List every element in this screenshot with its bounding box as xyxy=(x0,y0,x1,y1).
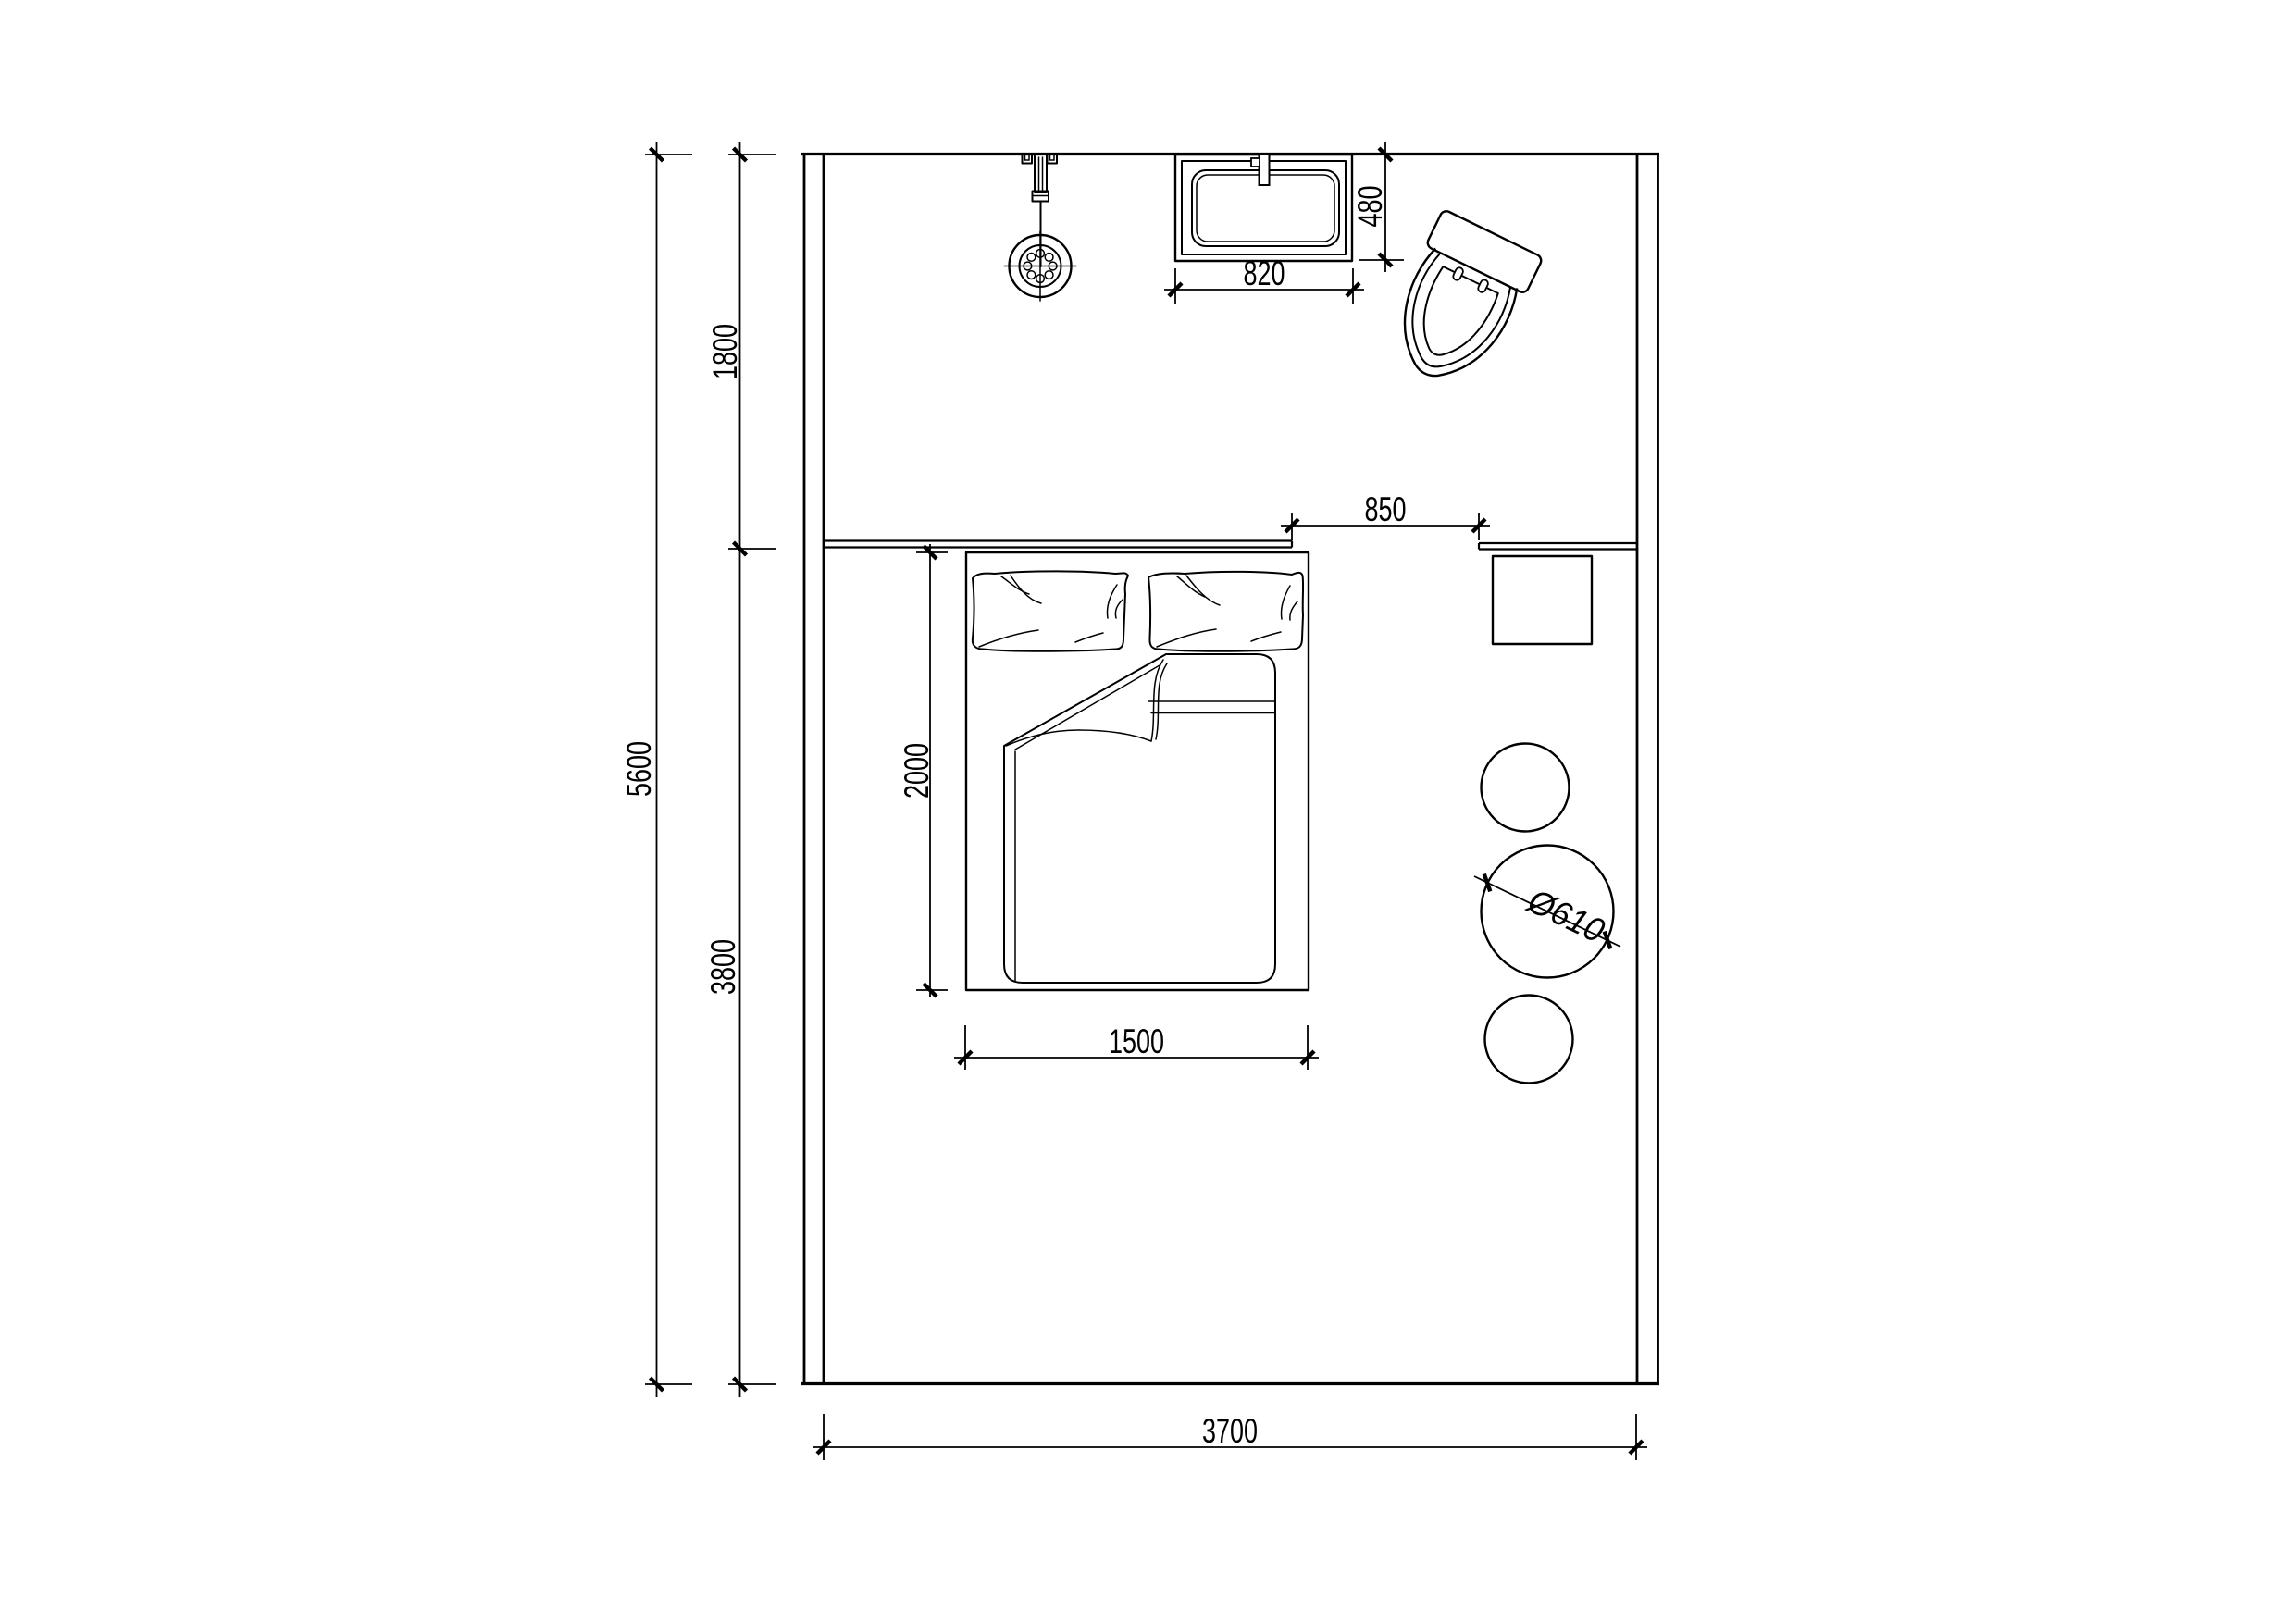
bed-frame xyxy=(966,552,1309,990)
basin-faucet-spout xyxy=(1260,155,1270,185)
dim-basin-depth: 480 xyxy=(1351,142,1404,272)
dim-basin-width-label: 820 xyxy=(1244,254,1285,292)
dim-bed-width-label: 1500 xyxy=(1109,1022,1164,1060)
round-stool-symbol-bottom xyxy=(1485,996,1573,1084)
dimensions: 5600 1800 3800 3700 xyxy=(620,142,1647,1460)
pillow-left xyxy=(973,571,1128,650)
toilet-hinge-left xyxy=(1452,266,1464,281)
shower-head-symbol xyxy=(1004,155,1076,301)
floor-plan-canvas: 5600 1800 3800 3700 xyxy=(0,0,2296,1623)
dim-opening-width: 850 xyxy=(1281,490,1490,540)
dim-bedroom-zone-label: 3800 xyxy=(704,939,742,995)
dim-basin-depth-label: 480 xyxy=(1351,186,1389,228)
dim-bed-width: 1500 xyxy=(954,1022,1319,1070)
dim-total-depth: 5600 xyxy=(620,142,692,1397)
dim-total-depth-label: 5600 xyxy=(620,741,658,797)
partition-half-wall xyxy=(824,541,1637,550)
shower-arm xyxy=(1035,155,1047,192)
basin-faucet-handle xyxy=(1251,158,1260,167)
duvet-fold-symbol xyxy=(1004,654,1275,983)
dim-table-diameter-label: Ø610 xyxy=(1520,881,1610,950)
toilet-hinge-right xyxy=(1477,279,1489,293)
floor-plan-drawing: 5600 1800 3800 3700 xyxy=(0,0,2296,1623)
nightstand-symbol xyxy=(1493,556,1592,644)
toilet-symbol xyxy=(1375,209,1544,398)
round-stool-symbol-top xyxy=(1482,744,1570,832)
pillow-right xyxy=(1148,572,1303,651)
dim-table-diameter: Ø610 xyxy=(1474,874,1620,950)
shower-wall-clip-right xyxy=(1048,155,1058,164)
toilet-bowl-outer xyxy=(1380,246,1522,396)
dim-room-width: 3700 xyxy=(813,1412,1647,1460)
dim-bed-length: 2000 xyxy=(898,544,948,997)
double-bed-symbol xyxy=(966,552,1309,990)
dim-opening-width-label: 850 xyxy=(1365,490,1407,528)
wash-basin-symbol xyxy=(1175,155,1352,261)
dim-room-width-label: 3700 xyxy=(1202,1412,1258,1450)
dim-bath-zone-label: 1800 xyxy=(706,324,744,379)
dim-zone-depths: 1800 3800 xyxy=(704,142,776,1397)
duvet-outline xyxy=(1004,654,1275,983)
dim-bed-length-label: 2000 xyxy=(898,743,936,799)
shower-wall-clip-left xyxy=(1023,155,1033,164)
